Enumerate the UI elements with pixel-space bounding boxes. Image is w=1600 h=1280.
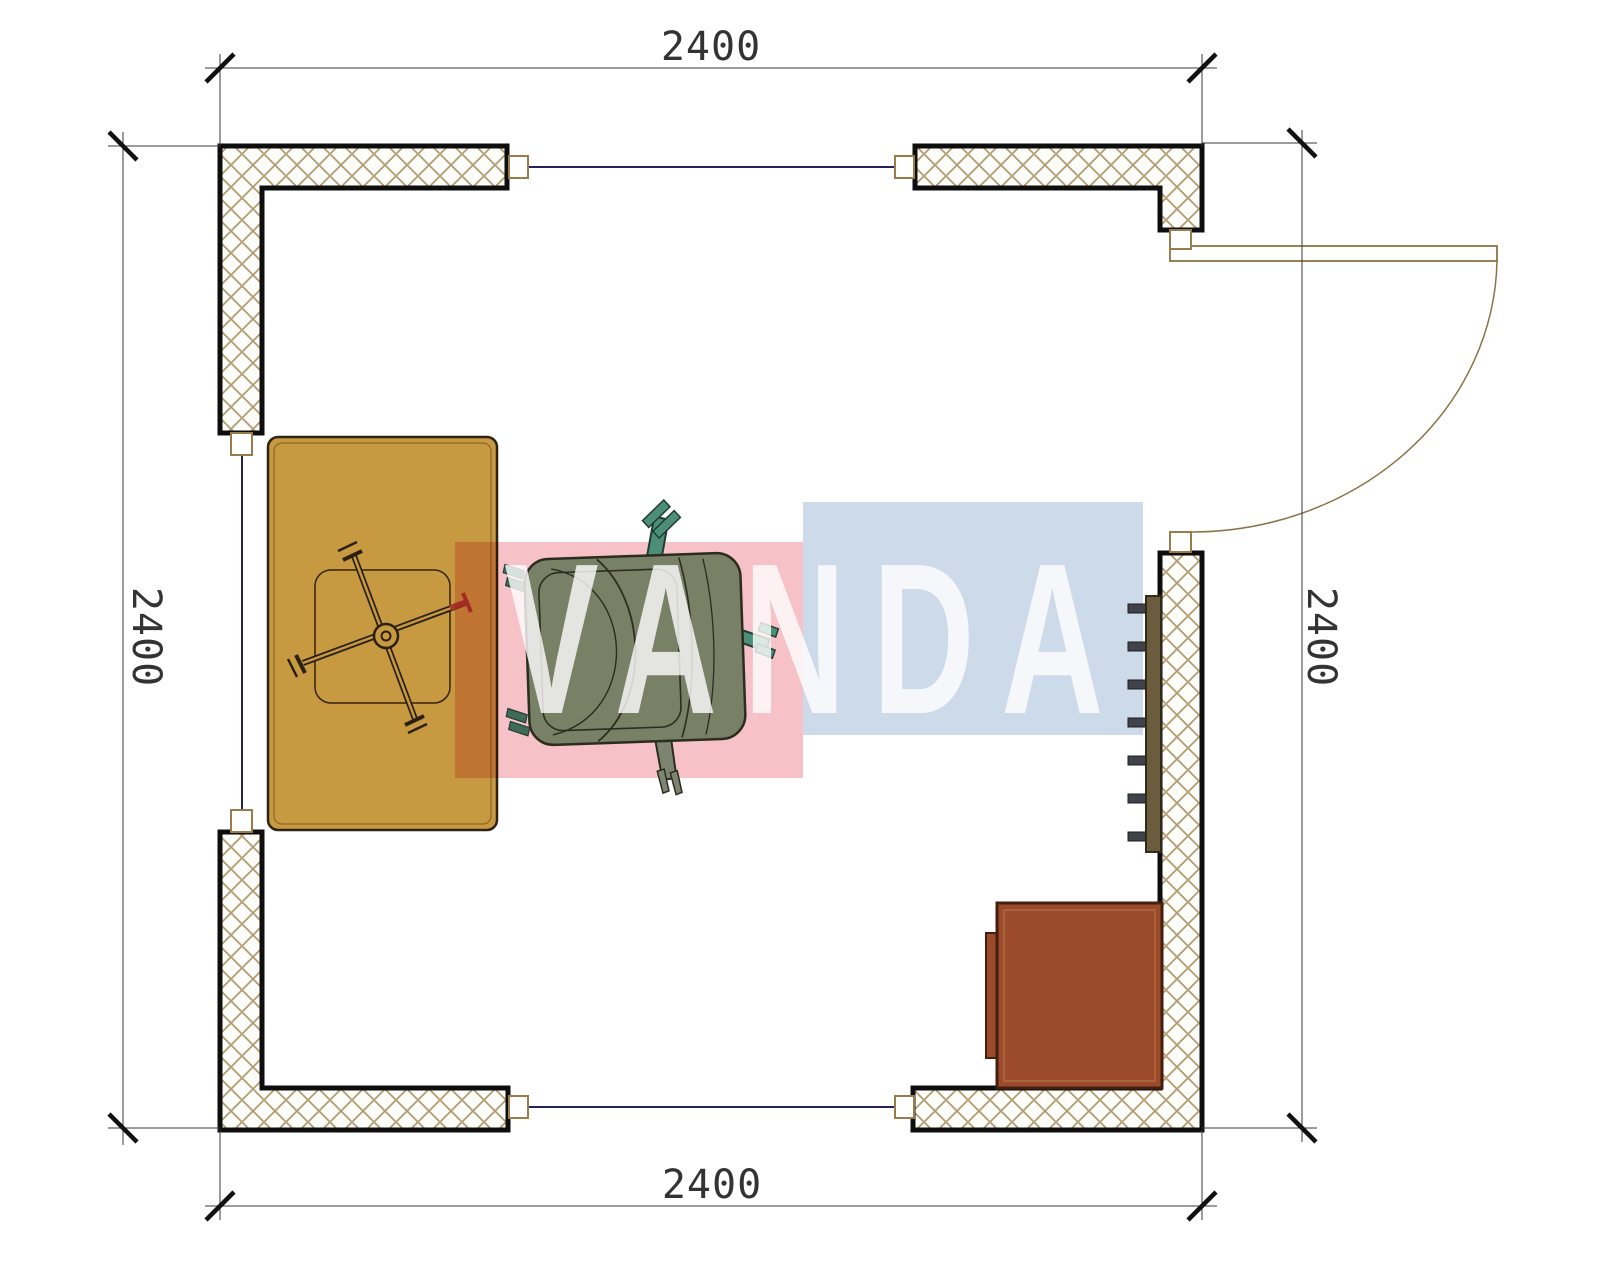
window-bottom-left-frame — [509, 1096, 528, 1118]
window-top-left-frame — [509, 156, 528, 178]
door-frame-top — [1170, 230, 1191, 249]
window-left-top-frame — [231, 433, 252, 455]
window-left-bottom-frame — [231, 810, 252, 832]
floor-plan-drawing: VANDA — [0, 0, 1600, 1280]
window-bottom-right-frame — [895, 1096, 914, 1118]
dimension-right-label: 2400 — [1298, 587, 1344, 687]
dimension-top-label: 2400 — [661, 24, 761, 70]
dimension-left-label: 2400 — [123, 587, 169, 687]
cabinet — [986, 903, 1162, 1088]
radiator-bar — [1146, 596, 1161, 852]
radiator-fin — [1128, 604, 1147, 613]
window-top-right-frame — [895, 156, 914, 178]
door-leaf — [1170, 246, 1497, 261]
star-base-hub — [374, 624, 398, 648]
radiator-fin — [1128, 642, 1147, 651]
door-frame-bottom — [1170, 532, 1191, 552]
floor-plan-canvas: VANDA — [0, 0, 1600, 1280]
radiator-fin — [1128, 718, 1147, 727]
radiator-fin — [1128, 832, 1147, 841]
cabinet-body — [997, 903, 1162, 1088]
watermark-text: VANDA — [504, 518, 1130, 759]
radiator-fin — [1128, 756, 1147, 765]
radiator-fin — [1128, 680, 1147, 689]
dimension-bottom-label: 2400 — [662, 1162, 762, 1208]
radiator-fin — [1128, 794, 1147, 803]
